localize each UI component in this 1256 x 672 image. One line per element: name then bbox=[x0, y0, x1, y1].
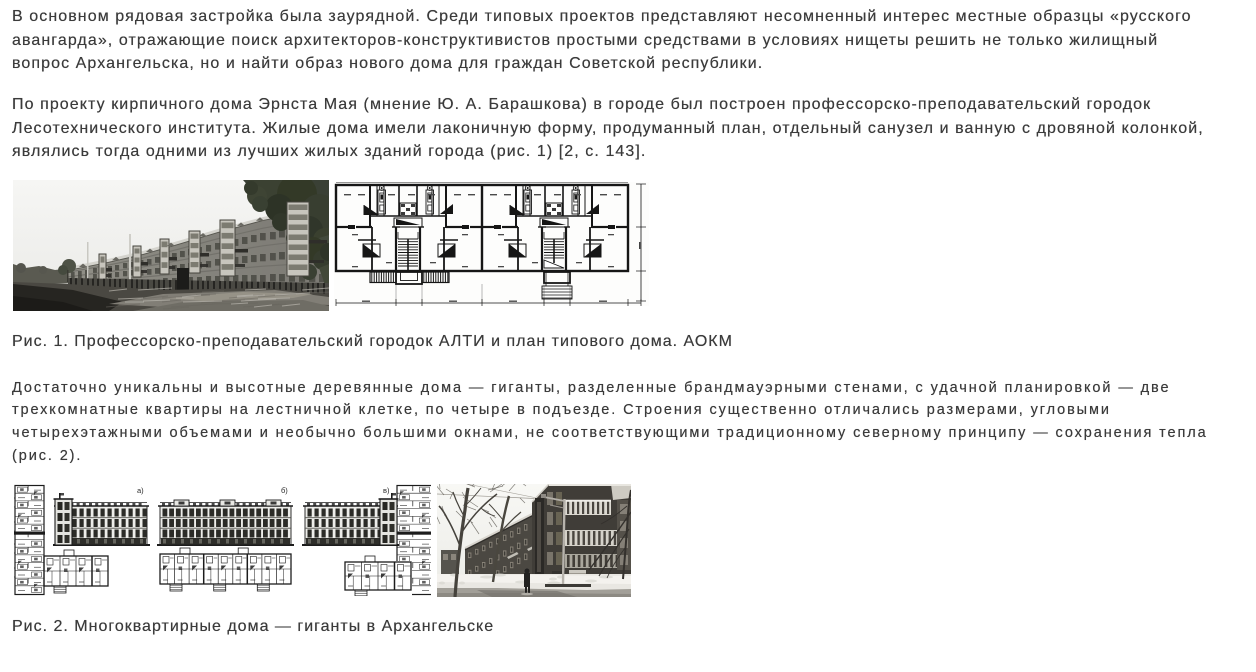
svg-text:а): а) bbox=[137, 486, 144, 495]
svg-text:б): б) bbox=[281, 486, 288, 495]
svg-text:в): в) bbox=[383, 486, 390, 495]
